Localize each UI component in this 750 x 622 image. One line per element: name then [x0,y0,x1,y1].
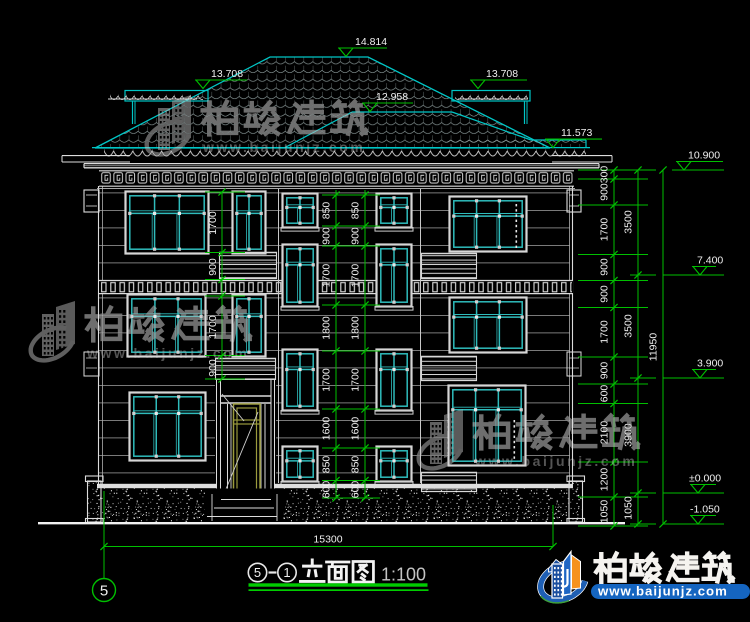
svg-text:900: 900 [350,227,362,245]
svg-text:900: 900 [599,258,611,276]
svg-text:3.900: 3.900 [697,358,723,370]
svg-text:1800: 1800 [321,316,333,340]
svg-text:850: 850 [321,202,333,220]
svg-text:1700: 1700 [350,264,362,288]
svg-text:5: 5 [100,583,108,600]
svg-text:±0.000: ±0.000 [689,473,721,485]
svg-text:1800: 1800 [350,316,362,340]
svg-text:1700: 1700 [599,218,611,242]
svg-text:1700: 1700 [207,211,219,235]
svg-text:7.400: 7.400 [697,255,723,267]
svg-text:1: 1 [283,565,290,580]
svg-text:1700: 1700 [321,368,333,392]
svg-text:850: 850 [321,456,333,474]
svg-text:1700: 1700 [350,368,362,392]
svg-text:850: 850 [350,202,362,220]
svg-text:1:100: 1:100 [381,565,426,585]
svg-text:600: 600 [350,481,362,499]
svg-text:600: 600 [599,385,611,403]
svg-text:2100: 2100 [599,421,611,445]
svg-text:900: 900 [207,258,219,276]
svg-text:900: 900 [207,359,219,377]
svg-text:11950: 11950 [648,333,660,362]
svg-text:3500: 3500 [623,210,635,234]
svg-text:13.708: 13.708 [211,68,243,80]
svg-text:1050: 1050 [623,496,635,520]
svg-text:900: 900 [321,227,333,245]
svg-text:600: 600 [321,481,333,499]
svg-text:5: 5 [254,565,261,580]
svg-text:14.814: 14.814 [355,36,387,48]
svg-text:1700: 1700 [321,264,333,288]
svg-text:-1.050: -1.050 [690,504,720,516]
svg-text:900: 900 [599,183,611,201]
svg-text:www.baijunjz.com: www.baijunjz.com [597,584,728,599]
svg-text:12.958: 12.958 [376,91,408,103]
svg-text:13.708: 13.708 [486,68,518,80]
svg-text:1700: 1700 [599,320,611,344]
svg-text:3500: 3500 [623,314,635,338]
svg-text:900: 900 [599,362,611,380]
svg-text:1200: 1200 [599,468,611,492]
svg-text:300: 300 [599,166,611,184]
svg-text:850: 850 [350,456,362,474]
svg-text:1600: 1600 [321,417,333,441]
svg-text:15300: 15300 [313,534,342,546]
svg-text:10.900: 10.900 [688,150,720,162]
svg-text:11.573: 11.573 [561,127,592,139]
svg-text:900: 900 [599,285,611,303]
svg-text:1050: 1050 [599,500,611,524]
svg-text:1600: 1600 [350,417,362,441]
